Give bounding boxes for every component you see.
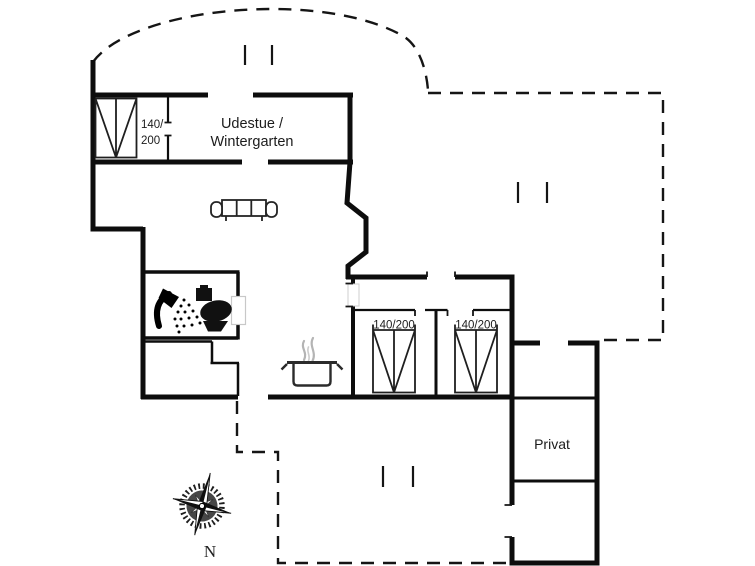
toilet-icon (196, 285, 234, 332)
compass-rose-icon (166, 466, 240, 543)
terrace-arc-top (93, 9, 428, 90)
terrace-door-ticks-top (245, 45, 272, 65)
floor-plan-canvas: Udestue / Wintergarten 140/ 200 140/200 … (0, 0, 755, 566)
room-label-privat: Privat (534, 436, 570, 452)
bed-icon-left (373, 325, 415, 393)
bed-size-label-left: 140/200 (373, 320, 415, 332)
utility-walls (143, 342, 239, 397)
steam-icon (303, 338, 314, 361)
room-label-udestue-line1: Udestue / (221, 116, 284, 132)
bed-icon-alcove (96, 99, 137, 158)
bed-size-label-right: 140/200 (455, 320, 497, 332)
door-leaves (232, 284, 360, 325)
bed-size-label-alcove-line2: 200 (141, 135, 160, 147)
sofa-icon (211, 200, 277, 221)
cooking-pot-icon (282, 363, 343, 386)
terrace-right-rect (428, 93, 663, 340)
bed-icon-right (455, 325, 497, 393)
floor-plan: Udestue / Wintergarten 140/ 200 140/200 … (0, 0, 755, 566)
room-label-udestue-line2: Wintergarten (210, 134, 293, 150)
terrace-bottom-boundary (237, 401, 511, 563)
bed-size-label-alcove-line1: 140/ (141, 119, 164, 131)
shower-icon (157, 289, 202, 334)
opening-tick-marks (245, 45, 547, 487)
bedroom-door (348, 284, 359, 306)
terrace-door-ticks-bottom (383, 466, 413, 487)
compass-north-label: N (204, 542, 216, 561)
terrace-door-ticks-right (518, 182, 547, 203)
bathroom-door (232, 297, 246, 325)
shower-spray-dots (174, 299, 202, 334)
